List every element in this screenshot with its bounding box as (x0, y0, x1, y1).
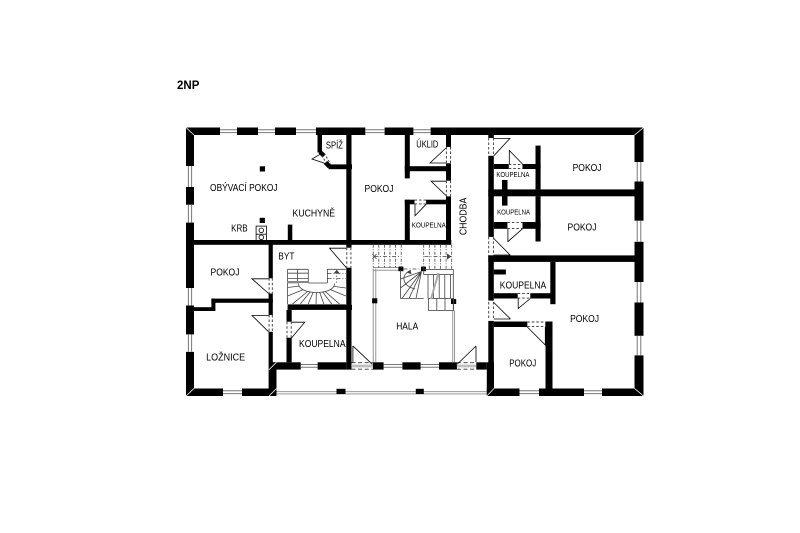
svg-text:POKOJ: POKOJ (570, 314, 599, 325)
svg-text:KOUPELNA: KOUPELNA (497, 207, 530, 216)
svg-text:CHODBA: CHODBA (459, 197, 470, 235)
svg-text:2NP: 2NP (177, 80, 200, 92)
svg-text:HALA: HALA (396, 322, 418, 333)
svg-text:LOŽNICE: LOŽNICE (206, 351, 245, 364)
svg-text:OBÝVACÍ POKOJ: OBÝVACÍ POKOJ (210, 181, 278, 194)
svg-text:SPÍŽ: SPÍŽ (326, 139, 343, 152)
svg-text:KRB: KRB (231, 224, 248, 235)
svg-text:POKOJ: POKOJ (365, 184, 394, 195)
svg-text:POKOJ: POKOJ (509, 358, 536, 369)
svg-text:KUCHYNĚ: KUCHYNĚ (293, 207, 336, 220)
svg-text:KOUPELNA: KOUPELNA (496, 170, 529, 179)
svg-text:KOUPELNA: KOUPELNA (412, 221, 446, 230)
svg-text:BYT: BYT (278, 252, 294, 263)
svg-text:POKOJ: POKOJ (573, 163, 602, 174)
svg-text:POKOJ: POKOJ (568, 223, 597, 234)
svg-text:ÚKLID: ÚKLID (416, 138, 438, 151)
svg-text:KOUPELNA: KOUPELNA (500, 281, 547, 292)
svg-text:POKOJ: POKOJ (211, 267, 240, 278)
svg-text:KOUPELNA: KOUPELNA (299, 339, 346, 350)
